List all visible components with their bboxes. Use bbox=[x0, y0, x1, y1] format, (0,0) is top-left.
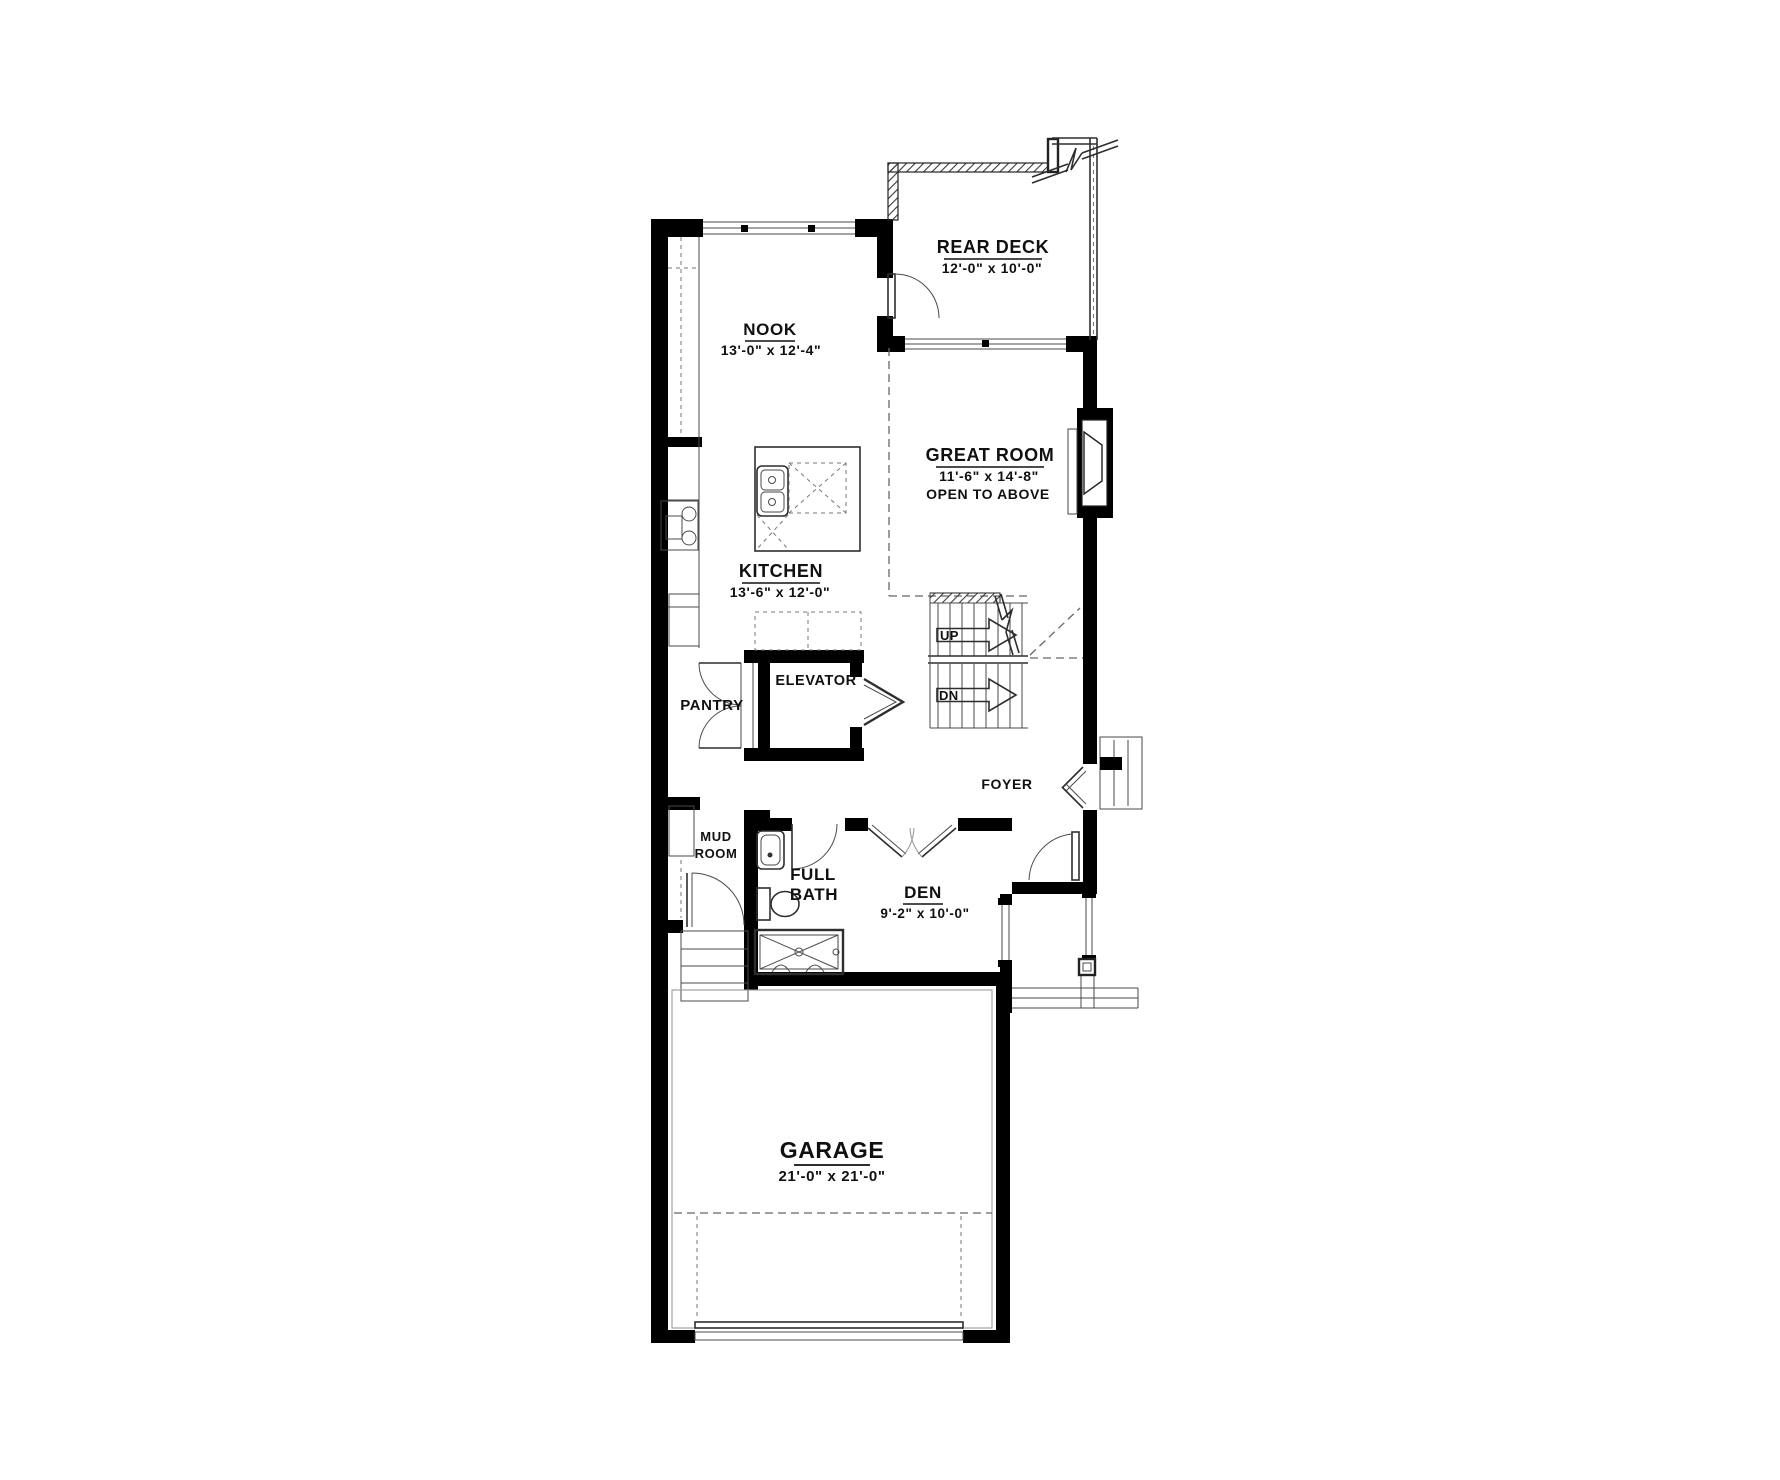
elevator-top-wall bbox=[744, 650, 864, 663]
room-den: DEN 9'-2" x 10'-0" bbox=[880, 883, 969, 921]
den-right-window bbox=[998, 898, 1012, 967]
nook-label: NOOK bbox=[743, 320, 797, 339]
floor-plan-canvas: UP DN bbox=[0, 0, 1780, 1480]
rear-deck-label: REAR DECK bbox=[937, 237, 1049, 257]
kitchen-sink bbox=[757, 466, 788, 516]
front-porch bbox=[1100, 737, 1142, 809]
den-top-wall-left bbox=[845, 818, 868, 831]
den-label: DEN bbox=[904, 883, 942, 902]
stair-top-wall-hatch bbox=[930, 593, 1000, 603]
fireplace bbox=[1068, 408, 1113, 518]
nook-dims: 13'-0" x 12'-4" bbox=[721, 342, 822, 358]
great-room-label: GREAT ROOM bbox=[926, 445, 1055, 465]
greatroom-top-wall-right bbox=[1066, 336, 1097, 352]
bath-top-wall bbox=[758, 818, 792, 831]
garage-door bbox=[695, 1322, 963, 1340]
garage-dims: 21'-0" x 21'-0" bbox=[778, 1168, 885, 1185]
porch-post bbox=[1079, 959, 1095, 975]
front-entry-door bbox=[1062, 767, 1086, 808]
left-exterior-wall bbox=[651, 219, 668, 1343]
rear-deck-dims: 12'-0" x 10'-0" bbox=[942, 260, 1043, 276]
kitchen-wall-stub bbox=[651, 437, 702, 447]
elevator-label: ELEVATOR bbox=[775, 673, 856, 689]
fridge bbox=[669, 594, 699, 646]
elevator-left-wall bbox=[758, 663, 770, 748]
break-line-symbol bbox=[1032, 140, 1118, 183]
greatroom-window bbox=[905, 339, 1066, 349]
garage-bottom-wall-left bbox=[651, 1330, 695, 1343]
great-room-dims: 11'-6" x 14'-8" bbox=[939, 468, 1039, 484]
porch-steps bbox=[1012, 959, 1138, 1008]
mudroom-bottom-stub bbox=[651, 920, 683, 933]
room-rear-deck: REAR DECK 12'-0" x 10'-0" bbox=[937, 237, 1049, 276]
room-full-bath: FULL BATH bbox=[790, 865, 838, 904]
mudroom-door bbox=[687, 873, 744, 927]
room-garage: GARAGE 21'-0" x 21'-0" bbox=[778, 1137, 885, 1185]
porch-side-window bbox=[1082, 891, 1096, 962]
elevator-right-wall-lower bbox=[850, 727, 862, 748]
up-label: UP bbox=[940, 628, 959, 643]
full-bath-label-line1: FULL bbox=[790, 865, 836, 884]
room-mud-room: MUD ROOM bbox=[695, 829, 738, 861]
stairs: UP DN bbox=[928, 593, 1028, 728]
garage-bottom-wall-right bbox=[963, 1330, 1010, 1343]
kitchen-island bbox=[755, 447, 860, 551]
deck-top-railing bbox=[888, 163, 1058, 172]
bath-door bbox=[792, 824, 837, 869]
den-double-doors bbox=[868, 825, 956, 857]
full-bath-label-line2: BATH bbox=[790, 885, 838, 904]
nook-deck-door bbox=[888, 274, 939, 318]
greatroom-top-wall-left bbox=[893, 336, 905, 352]
foyer-closet-door bbox=[1029, 832, 1079, 880]
mud-room-label-line2: ROOM bbox=[695, 846, 738, 861]
elevator-bottom-wall bbox=[744, 748, 864, 761]
great-room-note: OPEN TO ABOVE bbox=[926, 486, 1050, 502]
nook-window bbox=[703, 222, 855, 234]
hearth bbox=[1068, 429, 1077, 514]
vanity-sink bbox=[757, 831, 784, 869]
dn-label: DN bbox=[939, 688, 958, 703]
shower bbox=[755, 930, 843, 974]
nook-right-wall-lower bbox=[877, 316, 893, 352]
mud-room-label-line1: MUD bbox=[700, 829, 731, 844]
den-dims: 9'-2" x 10'-0" bbox=[880, 906, 969, 921]
room-great-room: GREAT ROOM 11'-6" x 14'-8" OPEN TO ABOVE bbox=[926, 445, 1055, 502]
nook-right-wall-upper bbox=[877, 219, 893, 278]
deck-left-railing bbox=[888, 163, 898, 220]
elevator-door bbox=[864, 679, 903, 725]
kitchen-label: KITCHEN bbox=[739, 561, 823, 581]
garage-label: GARAGE bbox=[780, 1137, 885, 1163]
mudroom-fixtures bbox=[669, 806, 694, 918]
peninsula-counter bbox=[755, 612, 861, 650]
island-hatch bbox=[757, 463, 846, 549]
pantry-label: PANTRY bbox=[680, 697, 744, 714]
kitchen-dims: 13'-6" x 12'-0" bbox=[730, 584, 831, 600]
room-nook: NOOK 13'-0" x 12'-4" bbox=[721, 320, 822, 358]
hall-wall bbox=[651, 797, 700, 810]
mudroom-bench bbox=[669, 806, 694, 856]
nook-top-wall-left bbox=[651, 219, 703, 237]
right-exterior-wall-lower bbox=[1083, 810, 1097, 894]
garage-right-wall bbox=[996, 986, 1010, 1343]
hall-jamb-stub bbox=[758, 810, 770, 818]
den-top-wall-right bbox=[958, 818, 1012, 831]
foyer-label: FOYER bbox=[981, 776, 1032, 792]
room-kitchen: KITCHEN 13'-6" x 12'-0" bbox=[730, 561, 831, 600]
floor-plan-drawing: UP DN bbox=[0, 0, 1780, 1480]
